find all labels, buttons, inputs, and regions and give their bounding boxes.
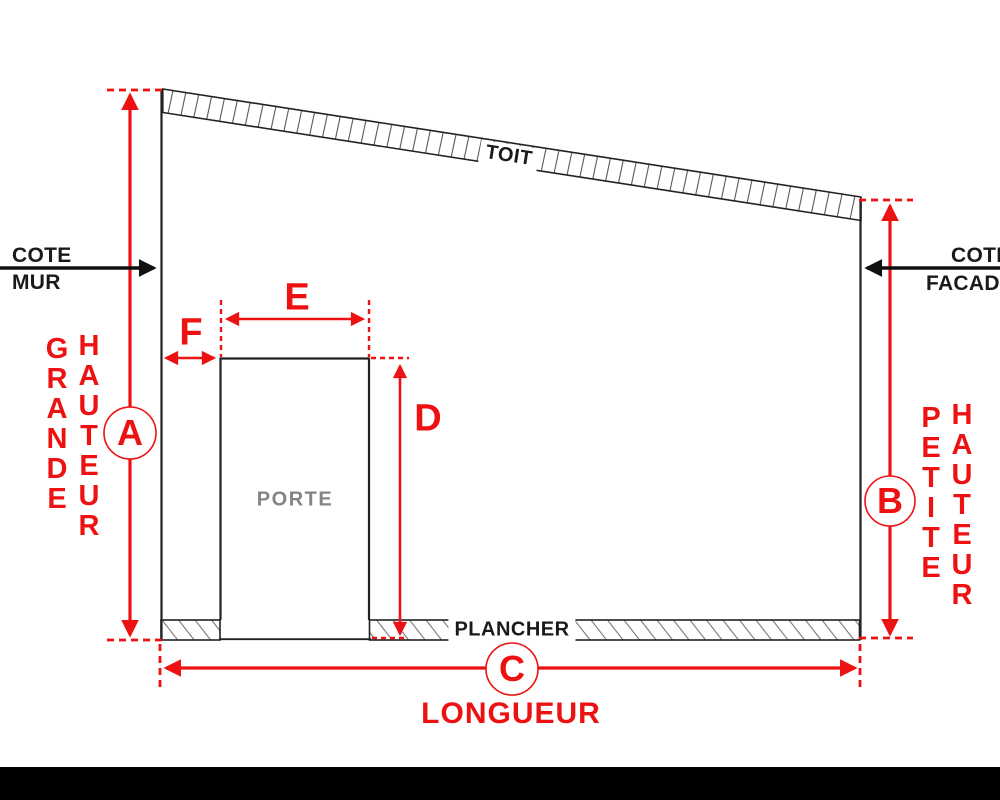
door-label: PORTE bbox=[257, 489, 333, 512]
dim-B-letter: B bbox=[877, 480, 903, 522]
cote-mur-line1: COTE bbox=[12, 244, 72, 268]
floor-band-left bbox=[161, 620, 220, 640]
cote-mur-line2: MUR bbox=[12, 271, 61, 295]
length-word-label: LONGUEUR bbox=[421, 697, 601, 731]
grande-vertical-word: GRANDE bbox=[45, 334, 69, 514]
hauteur-right-vertical-word: HAUTEUR bbox=[950, 400, 974, 610]
floor-band-right bbox=[370, 620, 860, 640]
dim-F-label: F bbox=[179, 312, 202, 355]
dim-D-label: D bbox=[414, 398, 441, 441]
bottom-black-bar bbox=[0, 767, 1000, 800]
dim-A-letter: A bbox=[117, 412, 143, 454]
hauteur-left-vertical-word: HAUTEUR bbox=[77, 331, 101, 541]
dim-C-letter: C bbox=[499, 648, 525, 690]
cote-facade-line1: COTE bbox=[951, 244, 1000, 268]
cote-facade-line2: FACADE bbox=[926, 272, 1000, 296]
floor-label: PLANCHER bbox=[448, 619, 575, 642]
dim-E-label: E bbox=[284, 277, 309, 320]
shed-dimension-diagram: TOIT PLANCHER PORTE COTE MUR COTE FACADE… bbox=[0, 0, 1000, 800]
petite-vertical-word: PETITE bbox=[919, 403, 943, 583]
